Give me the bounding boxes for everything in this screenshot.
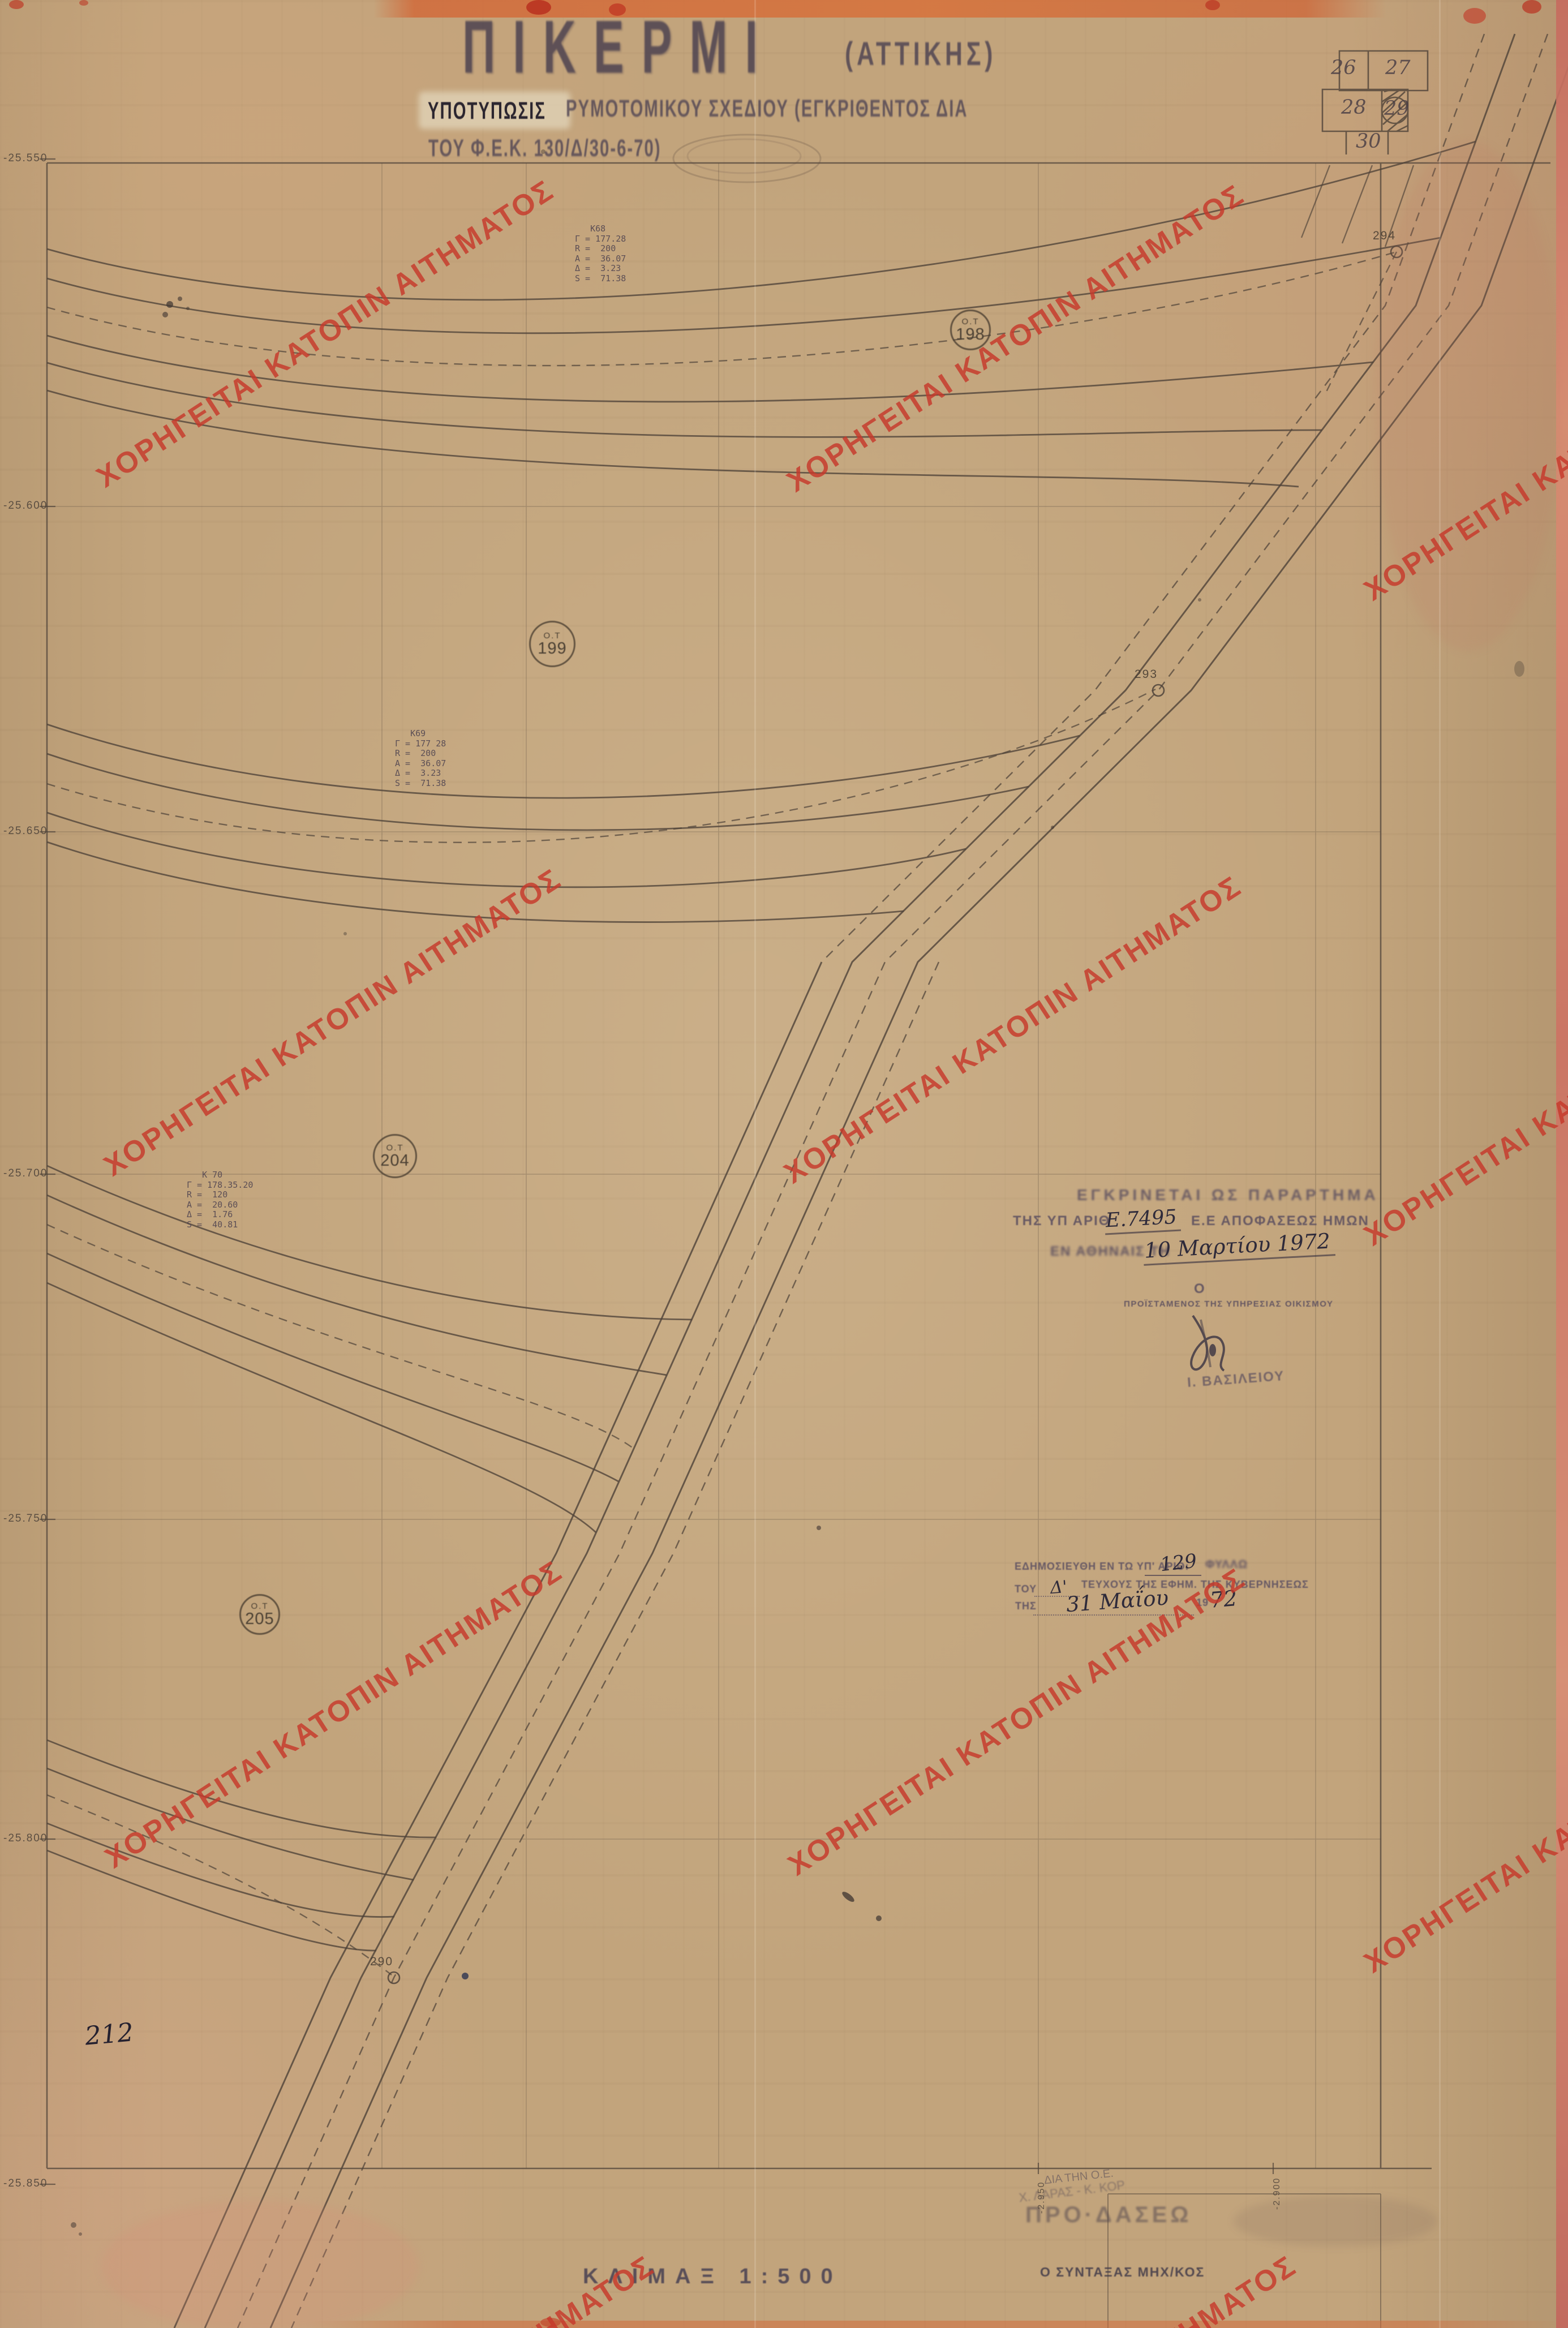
block-circle-205: Ο.Τ205 [239, 1594, 280, 1635]
red-blob [9, 0, 24, 9]
block-number: 198 [956, 327, 985, 343]
red-blob [1463, 8, 1486, 24]
red-blob [79, 0, 88, 6]
publication-line2-prefix: ΤΟΥ [1015, 1583, 1037, 1595]
map-title: ΠΙΚΕΡΜΙ [462, 3, 775, 90]
publication-underline [1145, 1575, 1201, 1576]
index-cell-30: 30 [1356, 130, 1381, 153]
diagonal-road [174, 34, 1568, 2328]
scan-edge-bottom [306, 2321, 1568, 2328]
faded-stamp-smudge [1234, 2196, 1437, 2247]
road-band-a-dashed [47, 252, 1397, 366]
subtitle-line2: ΤΟΥ Φ.Ε.Κ. 130/Δ/30-6-70) [428, 135, 661, 162]
curve-table-K70: K 70 Γ = 178.35.20 R = 120 A = 20.60 Δ =… [187, 1170, 253, 1230]
grid-lines [47, 163, 1381, 2168]
index-cell-26: 26 [1331, 57, 1356, 79]
map-region: (ΑΤΤΙΚΗΣ) [845, 35, 996, 73]
curve-table-K68: K68 Γ = 177.28 R = 200 A = 36.07 Δ = 3.2… [575, 224, 626, 284]
index-cell-27: 27 [1385, 57, 1411, 79]
approval-line2-suffix: Ε.Ε ΑΠΟΦΑΣΕΩΣ ΗΜΩΝ [1191, 1213, 1369, 1229]
index-cell-28: 28 [1341, 96, 1367, 119]
road-band-a [47, 141, 1476, 487]
crease-line [1439, 0, 1441, 2328]
forest-stam p: ΠΡΟ·ΔΑΣΕΩ [1025, 2202, 1192, 2228]
publication-line3-prefix: ΤΗΣ [1015, 1600, 1037, 1612]
subtitle-emphasis: ΥΠΟΤΥΠΩΣΙΣ [428, 97, 546, 125]
parcel-number-212: 212 [84, 2017, 135, 2051]
left-axis-label: -25.750 [3, 1513, 48, 1525]
scanned-map-sheet: ΠΙΚΕΡΜΙ (ΑΤΤΙΚΗΣ) ΥΠΟΤΥΠΩΣΙΣ ΡΥΜΟΤΟΜΙΚΟΥ… [0, 0, 1568, 2328]
left-axis-label: -25.800 [3, 1832, 48, 1845]
approval-line2-prefix: ΤΗΣ ΥΠ ΑΡΙΘ [1013, 1213, 1110, 1229]
pink-stain [102, 2201, 419, 2328]
ink-splat [1209, 1344, 1216, 1356]
road-band-b-dashed [47, 689, 1155, 843]
block-number: 199 [538, 641, 566, 657]
left-axis-label: -25.600 [3, 500, 48, 512]
crease-line [754, 0, 756, 2328]
publication-issue-number: 129 [1159, 1550, 1198, 1577]
left-axis-label: -25.550 [3, 152, 48, 165]
block-number: 204 [380, 1153, 409, 1169]
left-axis-label: -25.850 [3, 2177, 48, 2190]
block-number: 205 [245, 1611, 274, 1627]
block-circle-198: Ο.Τ198 [950, 310, 991, 350]
signature-scribble [1191, 1316, 1224, 1371]
diagonal-road-dashed [238, 34, 1548, 2328]
left-axis-label: -25.650 [3, 825, 48, 837]
approval-protocol-number: Ε.7495 [1104, 1206, 1181, 1235]
survey-point-label-294: 294 [1373, 229, 1396, 243]
survey-point-label-290: 290 [370, 1955, 393, 1969]
title-stain [673, 135, 820, 182]
bottom-axis-label: -2.900 [1272, 2177, 1282, 2210]
drafter-label: Ο ΣΥΝΤΑΞΑΣ ΜΗΧ/ΚΟΣ [1040, 2265, 1205, 2280]
curve-table-K69: K69 Γ = 177 28 R = 200 A = 36.07 Δ = 3.2… [395, 729, 446, 788]
index-cell-29-current: 29 [1384, 97, 1410, 120]
red-blob [1205, 0, 1220, 10]
survey-point-label-293: 293 [1135, 668, 1158, 681]
subtitle-rest: ΡΥΜΟΤΟΜΙΚΟΥ ΣΧΕΔΙΟΥ (ΕΓΚΡΙΘΕΝΤΟΣ ΔΙΑ [566, 95, 968, 123]
block-circle-204: Ο.Τ204 [373, 1134, 417, 1178]
approval-signer-title: ΠΡΟΪΣΤΑΜΕΝΟΣ ΤΗΣ ΥΠΗΡΕΣΙΑΣ ΟΙΚΙΣΜΟΥ [1124, 1299, 1334, 1309]
left-axis-label: -25.700 [3, 1167, 48, 1180]
bottom-axis-label: -2.950 [1037, 2181, 1047, 2214]
approval-signer-article: Ο [1194, 1281, 1206, 1297]
approval-line1: ΕΓΚΡΙΝΕΤΑΙ ΩΣ ΠΑΡΑΡΤΗΜΑ [1077, 1186, 1379, 1204]
block-circle-199: Ο.Τ199 [529, 621, 575, 667]
red-blob [1522, 0, 1541, 14]
road-band-c-dashed [47, 1225, 634, 1449]
